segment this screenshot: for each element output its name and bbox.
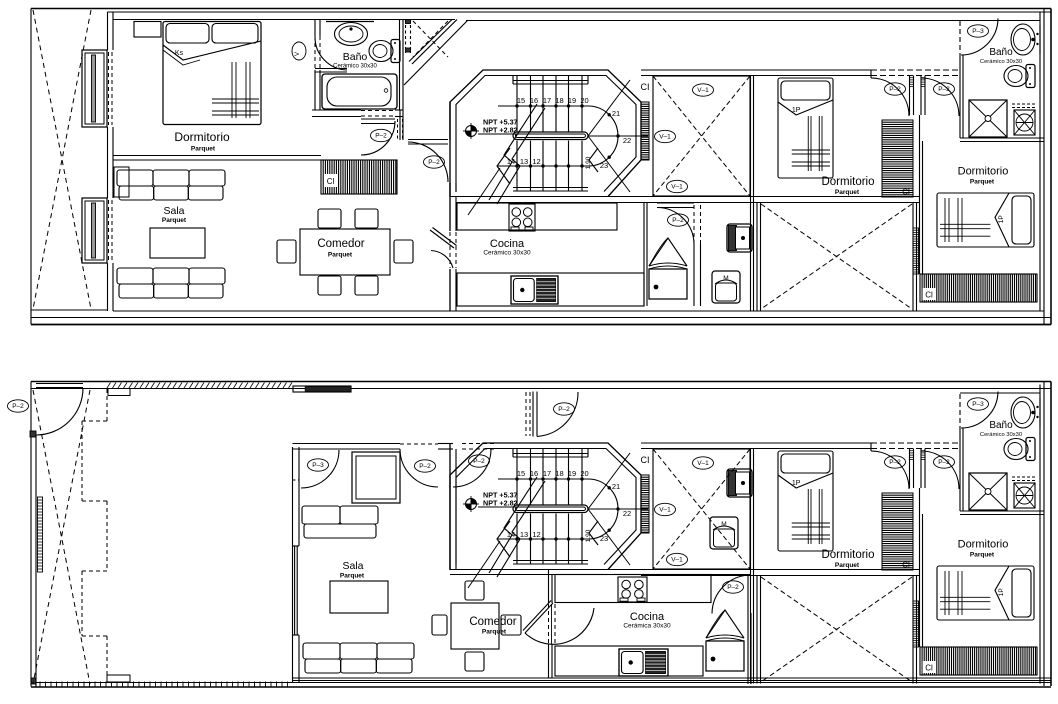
svg-text:18: 18 [555, 469, 563, 478]
svg-text:NPT +2.82: NPT +2.82 [483, 499, 518, 508]
svg-text:19: 19 [568, 96, 576, 105]
svg-text:V–1: V–1 [671, 184, 683, 191]
svg-text:V–1: V–1 [697, 460, 709, 467]
svg-text:Dormitorio: Dormitorio [958, 166, 1009, 178]
svg-text:16: 16 [530, 469, 538, 478]
svg-text:19: 19 [568, 469, 576, 478]
svg-text:17: 17 [543, 469, 551, 478]
svg-text:Baño: Baño [989, 47, 1013, 58]
svg-text:Cl: Cl [327, 177, 335, 186]
svg-text:P–2: P–2 [419, 463, 431, 470]
svg-text:V–1: V–1 [697, 87, 709, 94]
svg-text:V–1: V–1 [659, 134, 671, 141]
svg-text:12: 12 [532, 530, 540, 539]
svg-text:1P: 1P [998, 588, 1005, 596]
svg-text:13: 13 [520, 530, 528, 539]
svg-text:17: 17 [543, 96, 551, 105]
svg-text:CI: CI [641, 455, 650, 465]
svg-text:Parquet: Parquet [340, 573, 365, 580]
svg-text:V–1: V–1 [659, 507, 671, 514]
svg-text:1P: 1P [792, 480, 801, 487]
svg-text:P–3: P–3 [312, 462, 324, 469]
svg-text:Baño: Baño [343, 51, 368, 63]
svg-text:Cocina: Cocina [490, 238, 525, 250]
svg-text:Parquet: Parquet [835, 562, 860, 569]
svg-text:21: 21 [612, 482, 620, 491]
svg-text:Parquet: Parquet [162, 217, 187, 224]
svg-text:P–2: P–2 [889, 86, 901, 93]
svg-text:Comedor: Comedor [317, 238, 364, 250]
svg-text:V: V [295, 52, 301, 56]
svg-text:P–2: P–2 [727, 584, 739, 591]
svg-text:Parquet: Parquet [835, 189, 860, 196]
svg-text:Sala: Sala [342, 560, 363, 572]
svg-text:M: M [721, 521, 726, 528]
svg-text:Cerámico 30x30: Cerámico 30x30 [333, 64, 377, 70]
svg-text:21: 21 [612, 109, 620, 118]
svg-text:22: 22 [623, 509, 631, 518]
svg-text:Parquet: Parquet [970, 552, 995, 559]
svg-text:15: 15 [517, 96, 525, 105]
svg-text:P–3: P–3 [972, 401, 984, 408]
svg-text:Comedor: Comedor [469, 616, 516, 628]
svg-text:Baño: Baño [989, 420, 1013, 431]
svg-text:Parquet: Parquet [191, 146, 216, 153]
svg-text:P–2: P–2 [375, 133, 387, 140]
svg-text:Cl: Cl [902, 188, 910, 197]
svg-text:Parquet: Parquet [970, 179, 995, 186]
svg-text:Dormitorio: Dormitorio [821, 549, 874, 561]
svg-text:18: 18 [555, 96, 563, 105]
svg-text:P–2: P–2 [938, 86, 950, 93]
svg-text:Cocina: Cocina [630, 611, 665, 623]
svg-text:P–2: P–2 [558, 406, 570, 413]
svg-text:12: 12 [532, 157, 540, 166]
svg-text:Cerámico 30x30: Cerámico 30x30 [483, 250, 531, 257]
svg-text:NPT +2.82: NPT +2.82 [483, 126, 518, 135]
svg-text:P–2: P–2 [428, 159, 440, 166]
svg-text:1P: 1P [998, 215, 1005, 223]
svg-text:1P: 1P [792, 107, 801, 114]
svg-text:P–3: P–3 [972, 28, 984, 35]
svg-text:Cl: Cl [925, 291, 933, 300]
svg-text:15: 15 [517, 469, 525, 478]
svg-text:Cerámico 30x30: Cerámico 30x30 [980, 432, 1022, 438]
svg-text:P–2: P–2 [938, 459, 950, 466]
svg-text:16: 16 [530, 96, 538, 105]
svg-text:Parquet: Parquet [328, 252, 353, 259]
svg-text:20: 20 [580, 96, 588, 105]
svg-text:Cerámico 30x30: Cerámico 30x30 [980, 59, 1022, 65]
svg-text:22: 22 [623, 136, 631, 145]
svg-text:P–2: P–2 [12, 403, 24, 410]
svg-text:Cl: Cl [925, 664, 933, 673]
svg-text:CI: CI [641, 82, 650, 92]
svg-text:V–1: V–1 [671, 557, 683, 564]
svg-text:Sala: Sala [163, 205, 184, 217]
svg-text:Ks: Ks [175, 50, 184, 57]
svg-text:13: 13 [520, 157, 528, 166]
svg-text:Cerámica 30x30: Cerámica 30x30 [623, 623, 671, 630]
svg-text:Dormitorio: Dormitorio [174, 130, 230, 144]
svg-text:P–2: P–2 [889, 459, 901, 466]
svg-text:23: 23 [600, 161, 608, 170]
svg-text:Dormitorio: Dormitorio [821, 176, 874, 188]
svg-text:Parquet: Parquet [482, 629, 507, 636]
svg-text:Cl: Cl [902, 561, 910, 570]
svg-text:Dormitorio: Dormitorio [958, 539, 1009, 551]
svg-text:M: M [723, 275, 728, 282]
svg-text:23: 23 [600, 534, 608, 543]
svg-text:20: 20 [580, 469, 588, 478]
svg-text:P–2: P–2 [672, 217, 684, 224]
